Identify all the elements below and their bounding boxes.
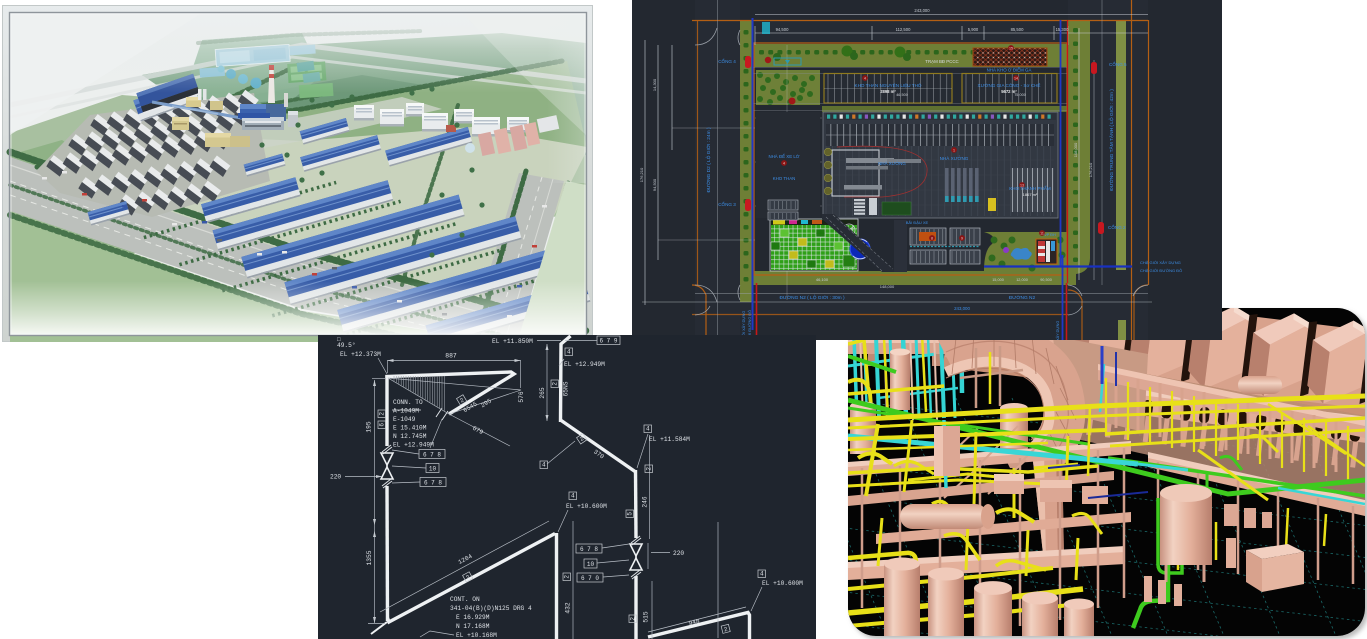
svg-text:NHÀ XƯỞNG: NHÀ XƯỞNG bbox=[878, 161, 906, 166]
svg-text:576: 576 bbox=[518, 391, 525, 402]
svg-text:CỔNG 5: CỔNG 5 bbox=[1109, 61, 1127, 67]
svg-text:94,500: 94,500 bbox=[776, 27, 789, 32]
svg-text:46,500: 46,500 bbox=[896, 93, 908, 97]
svg-text:176,210: 176,210 bbox=[639, 167, 644, 182]
svg-text:15,300: 15,300 bbox=[1056, 27, 1069, 32]
svg-text:46,100: 46,100 bbox=[816, 277, 829, 282]
svg-text:KHO THAN NGUYÊN LIỆU THÔ: KHO THAN NGUYÊN LIỆU THÔ bbox=[855, 81, 922, 88]
svg-text:2: 2 bbox=[552, 382, 559, 386]
svg-text:4: 4 bbox=[760, 571, 764, 578]
svg-text:VP ĐH: VP ĐH bbox=[1044, 233, 1056, 237]
svg-text:E 16.929M: E 16.929M bbox=[456, 614, 490, 621]
svg-text:EL +10.168M: EL +10.168M bbox=[456, 632, 497, 639]
svg-text:4: 4 bbox=[783, 161, 785, 165]
svg-text:1: 1 bbox=[953, 148, 955, 152]
svg-text:2898 m²: 2898 m² bbox=[880, 89, 896, 94]
svg-text:49.5°: 49.5° bbox=[337, 342, 356, 349]
svg-text:2: 2 bbox=[564, 575, 571, 579]
svg-text:9: 9 bbox=[961, 236, 963, 240]
svg-text:243,000: 243,000 bbox=[954, 306, 970, 311]
svg-text:2: 2 bbox=[630, 617, 637, 621]
svg-text:A-1049M: A-1049M bbox=[393, 408, 419, 415]
svg-text:2: 2 bbox=[379, 412, 386, 416]
svg-text:65NS: 65NS bbox=[563, 381, 570, 396]
svg-text:KHO THAN: KHO THAN bbox=[773, 176, 796, 181]
svg-text:12,000: 12,000 bbox=[1016, 278, 1028, 282]
svg-text:ĐƯỜNG N2 ( LỘ GIỚI : 30m ): ĐƯỜNG N2 ( LỘ GIỚI : 30m ) bbox=[779, 294, 845, 301]
svg-text:2: 2 bbox=[646, 467, 653, 471]
svg-text:8: 8 bbox=[931, 236, 933, 240]
svg-text:EL +12.949M: EL +12.949M bbox=[393, 442, 434, 449]
svg-text:4: 4 bbox=[542, 462, 546, 469]
svg-text:176,210: 176,210 bbox=[1088, 162, 1093, 177]
svg-text:NHÀ KHO Ơ ĐIỂM GA: NHÀ KHO Ơ ĐIỂM GA bbox=[987, 68, 1032, 73]
svg-text:ĐƯỜNG D2 ( LỘ GIỚI : 24m ): ĐƯỜNG D2 ( LỘ GIỚI : 24m ) bbox=[705, 127, 712, 193]
svg-text:85,500: 85,500 bbox=[1011, 27, 1024, 32]
svg-text:EL +11.584M: EL +11.584M bbox=[649, 436, 690, 443]
svg-text:CHẶ GIỚI XÂY DỰNG: CHẶ GIỚI XÂY DỰNG bbox=[1055, 321, 1060, 340]
svg-text:4: 4 bbox=[864, 76, 866, 80]
svg-text:TRẠM BĐ PCCC: TRẠM BĐ PCCC bbox=[925, 59, 958, 64]
svg-text:XƯỜNG GIA CÔNG - Sơ CHẾ: XƯỜNG GIA CÔNG - Sơ CHẾ bbox=[978, 82, 1041, 88]
svg-text:14,300: 14,300 bbox=[652, 78, 657, 91]
svg-text:NHÀ ĐỂ XE LỚ: NHÀ ĐỂ XE LỚ bbox=[768, 154, 799, 159]
svg-text:94,500: 94,500 bbox=[652, 178, 657, 191]
svg-text:CHẶ GIỚI ĐƯỜNG ĐỎ: CHẶ GIỚI ĐƯỜNG ĐỎ bbox=[1140, 268, 1182, 273]
svg-text:90,500: 90,500 bbox=[1040, 278, 1052, 282]
svg-text:243,000: 243,000 bbox=[914, 8, 930, 13]
svg-text:ĐƯỜNG TRUNG TÂM TẶNH ( LỘ GIỚI: ĐƯỜNG TRUNG TÂM TẶNH ( LỘ GIỚI : 42m ) bbox=[1108, 89, 1115, 191]
svg-text:148,000: 148,000 bbox=[880, 284, 895, 289]
svg-text:265: 265 bbox=[539, 387, 546, 398]
svg-text:CHẶ GIỚI XÂY DỰNG: CHẶ GIỚI XÂY DỰNG bbox=[1140, 260, 1181, 265]
svg-text:BÃI ĐẬU XE: BÃI ĐẬU XE bbox=[906, 220, 929, 225]
svg-text:5: 5 bbox=[627, 512, 634, 516]
svg-text:N 12.745M: N 12.745M bbox=[393, 433, 427, 440]
svg-text:CONT. ON: CONT. ON bbox=[450, 596, 480, 603]
svg-text:4: 4 bbox=[571, 493, 575, 500]
svg-text:N 17.168M: N 17.168M bbox=[456, 623, 490, 630]
svg-text:6 7 8: 6 7 8 bbox=[580, 546, 598, 553]
svg-text:14: 14 bbox=[1014, 76, 1018, 80]
svg-text:KHO THÀNH PHẨM: KHO THÀNH PHẨM bbox=[1009, 185, 1051, 191]
svg-text:CỔNG 4: CỔNG 4 bbox=[718, 58, 736, 64]
svg-text:195: 195 bbox=[366, 421, 373, 432]
svg-text:10: 10 bbox=[587, 561, 595, 568]
svg-text:10: 10 bbox=[429, 466, 437, 473]
svg-text:112,500: 112,500 bbox=[896, 27, 911, 32]
svg-text:4: 4 bbox=[646, 426, 650, 433]
svg-text:NHÀ XƯỞNG: NHÀ XƯỞNG bbox=[940, 155, 969, 161]
svg-text:15,000: 15,000 bbox=[992, 278, 1004, 282]
svg-text:15: 15 bbox=[1009, 46, 1013, 50]
svg-text:6: 6 bbox=[379, 423, 386, 427]
svg-text:EL +12.373M: EL +12.373M bbox=[340, 351, 381, 358]
svg-text:EL +11.850M: EL +11.850M bbox=[492, 338, 533, 345]
svg-text:EL +10.600M: EL +10.600M bbox=[566, 503, 607, 510]
svg-text:CỔNG 2: CỔNG 2 bbox=[1108, 224, 1126, 230]
svg-text:EL +10.600M: EL +10.600M bbox=[762, 580, 803, 587]
svg-text:6 7 0: 6 7 0 bbox=[581, 575, 599, 582]
svg-text:887: 887 bbox=[445, 353, 457, 360]
svg-text:6 7 8: 6 7 8 bbox=[424, 480, 442, 487]
svg-text:341-04(B)(D)N125 DRG 4: 341-04(B)(D)N125 DRG 4 bbox=[450, 605, 532, 612]
svg-text:E-1049: E-1049 bbox=[393, 416, 416, 423]
svg-text:4: 4 bbox=[567, 349, 571, 356]
svg-text:220: 220 bbox=[673, 550, 684, 557]
svg-text:ĐƯỜNG N2: ĐƯỜNG N2 bbox=[1009, 294, 1036, 301]
svg-text:CONN. TO: CONN. TO bbox=[393, 399, 423, 406]
svg-text:5,900: 5,900 bbox=[968, 27, 979, 32]
svg-text:6 7 8: 6 7 8 bbox=[423, 452, 441, 459]
svg-text:CỔNG 3: CỔNG 3 bbox=[718, 201, 736, 207]
svg-text:1867 m²: 1867 m² bbox=[1023, 192, 1038, 197]
svg-text:246: 246 bbox=[642, 496, 649, 507]
svg-text:6 7 9: 6 7 9 bbox=[599, 338, 617, 345]
svg-text:432: 432 bbox=[565, 602, 572, 613]
svg-text:EL +12.949M: EL +12.949M bbox=[564, 361, 605, 368]
svg-text:1355: 1355 bbox=[366, 550, 373, 565]
svg-text:515: 515 bbox=[643, 611, 650, 622]
svg-text:75,000: 75,000 bbox=[1014, 93, 1026, 97]
svg-text:E 15.410M: E 15.410M bbox=[393, 425, 427, 432]
svg-text:108,000: 108,000 bbox=[1073, 142, 1078, 157]
svg-text:220: 220 bbox=[330, 474, 341, 481]
